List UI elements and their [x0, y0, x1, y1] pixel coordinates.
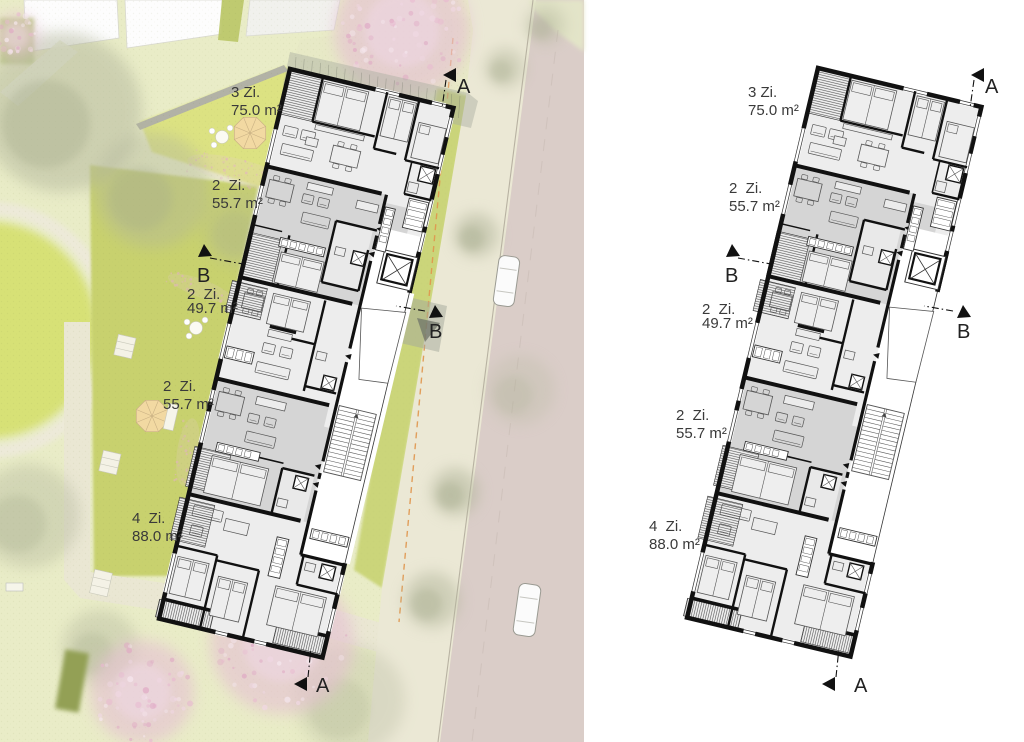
- svg-text:4 Zi.: 4 Zi.: [132, 510, 165, 527]
- svg-text:75.0 m²: 75.0 m²: [231, 102, 282, 119]
- svg-text:A: A: [854, 675, 868, 697]
- svg-text:A: A: [457, 76, 471, 98]
- svg-text:3 Zi.: 3 Zi.: [748, 84, 777, 101]
- svg-text:55.7 m²: 55.7 m²: [163, 396, 214, 413]
- svg-text:88.0 m²: 88.0 m²: [132, 528, 183, 545]
- svg-text:B: B: [197, 265, 210, 287]
- svg-text:B: B: [725, 265, 738, 287]
- svg-text:A: A: [985, 76, 999, 98]
- svg-text:49.7 m²: 49.7 m²: [187, 300, 238, 317]
- svg-text:2 Zi.: 2 Zi.: [212, 177, 245, 194]
- svg-text:2 Zi.: 2 Zi.: [163, 378, 196, 395]
- svg-text:88.0 m²: 88.0 m²: [649, 536, 700, 553]
- svg-text:B: B: [957, 321, 970, 343]
- svg-text:55.7 m²: 55.7 m²: [212, 195, 263, 212]
- svg-text:A: A: [316, 675, 330, 697]
- svg-text:55.7 m²: 55.7 m²: [729, 198, 780, 215]
- svg-text:3 Zi.: 3 Zi.: [231, 84, 260, 101]
- svg-text:4 Zi.: 4 Zi.: [649, 518, 682, 535]
- svg-text:49.7 m²: 49.7 m²: [702, 315, 753, 332]
- svg-text:2 Zi.: 2 Zi.: [676, 407, 709, 424]
- svg-text:55.7 m²: 55.7 m²: [676, 425, 727, 442]
- svg-text:B: B: [429, 321, 442, 343]
- svg-text:75.0 m²: 75.0 m²: [748, 102, 799, 119]
- svg-text:2 Zi.: 2 Zi.: [729, 180, 762, 197]
